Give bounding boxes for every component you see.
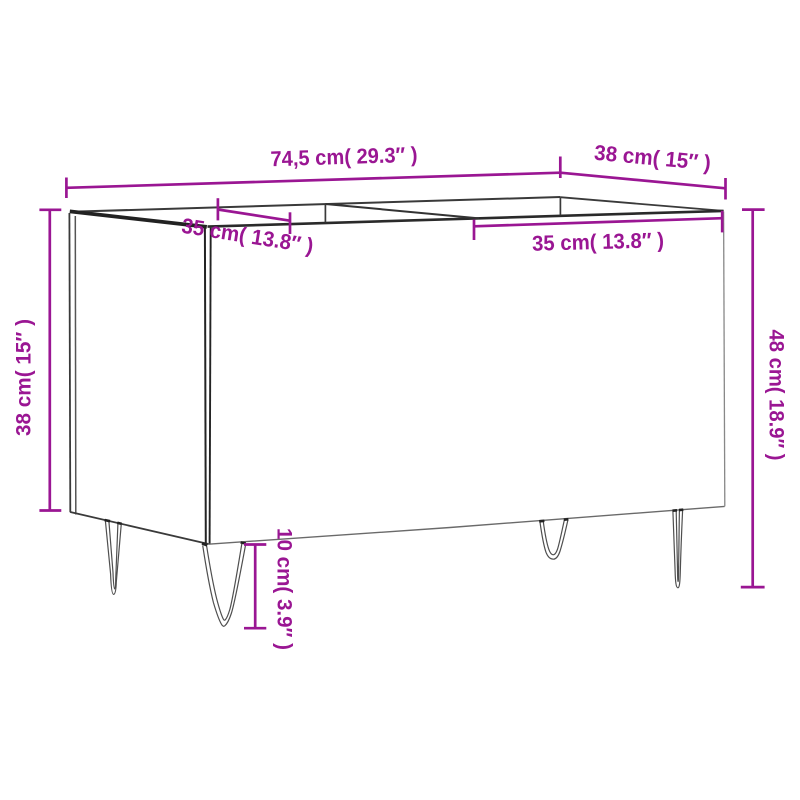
svg-text:35 cm( 13.8″ ): 35 cm( 13.8″ ) bbox=[180, 214, 315, 259]
svg-text:38 cm( 15″ ): 38 cm( 15″ ) bbox=[593, 141, 712, 176]
svg-text:74,5 cm( 29.3″ ): 74,5 cm( 29.3″ ) bbox=[270, 143, 418, 172]
svg-text:10 cm( 3.9″ ): 10 cm( 3.9″ ) bbox=[273, 528, 297, 650]
svg-text:48 cm( 18.9″ ): 48 cm( 18.9″ ) bbox=[765, 330, 789, 461]
svg-text:35 cm( 13.8″ ): 35 cm( 13.8″ ) bbox=[532, 228, 665, 255]
svg-text:38 cm( 15″ ): 38 cm( 15″ ) bbox=[12, 319, 36, 436]
